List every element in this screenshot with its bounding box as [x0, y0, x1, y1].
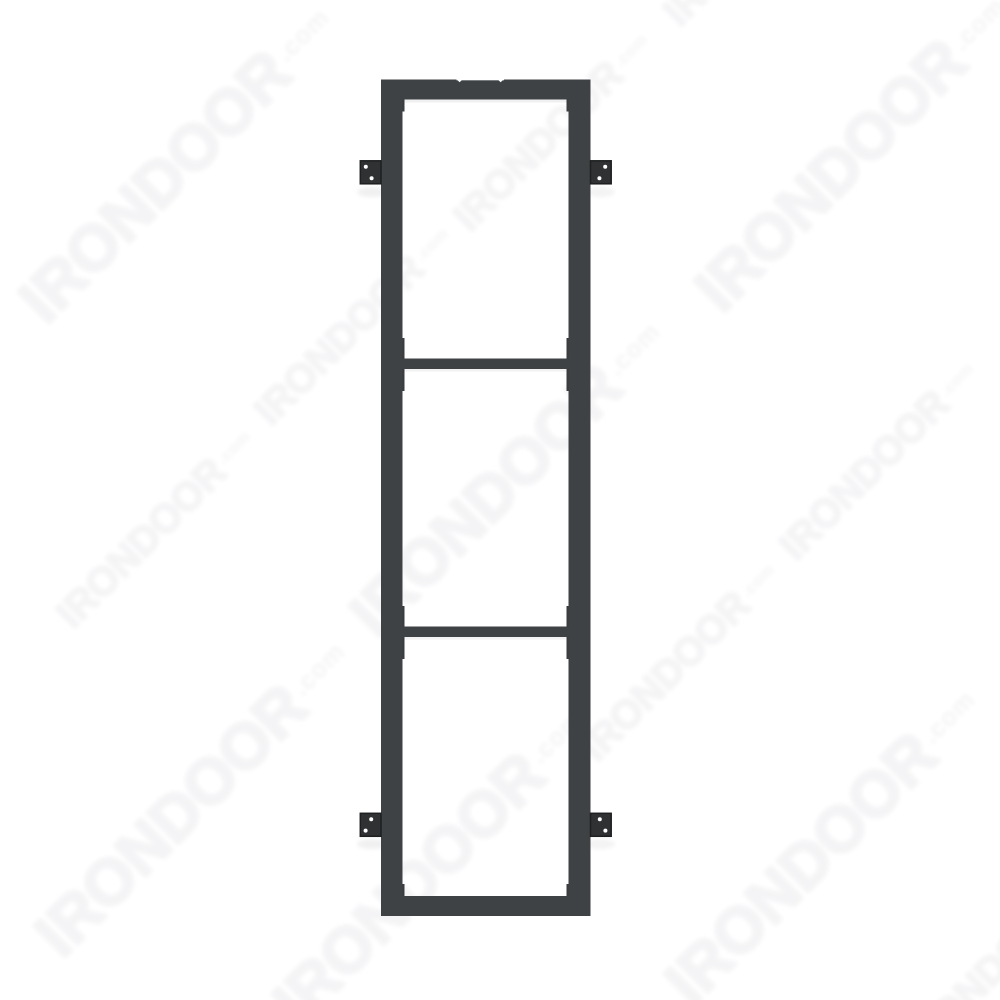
svg-text:IRONDOOR.com: IRONDOOR.com	[651, 671, 998, 1000]
svg-text:IRONDOOR.com: IRONDOOR.com	[21, 623, 368, 970]
svg-text:IRONDOOR.com: IRONDOOR.com	[259, 691, 606, 1000]
svg-text:IRONDOOR.com: IRONDOOR.com	[5, 0, 352, 336]
svg-text:IRONDOOR.com: IRONDOOR.com	[572, 553, 789, 770]
svg-text:IRONDOOR.com: IRONDOOR.com	[771, 352, 988, 569]
svg-text:IRONDOOR.com: IRONDOOR.com	[246, 217, 463, 434]
svg-text:IRONDOOR.com: IRONDOOR.com	[655, 0, 872, 34]
svg-text:IRONDOOR.com: IRONDOOR.com	[48, 420, 265, 637]
svg-text:IRONDOOR.com: IRONDOOR.com	[681, 0, 1000, 325]
svg-text:IRONDOOR.com: IRONDOOR.com	[445, 23, 662, 240]
svg-text:IRONDOOR.com: IRONDOOR.com	[895, 850, 1000, 1000]
